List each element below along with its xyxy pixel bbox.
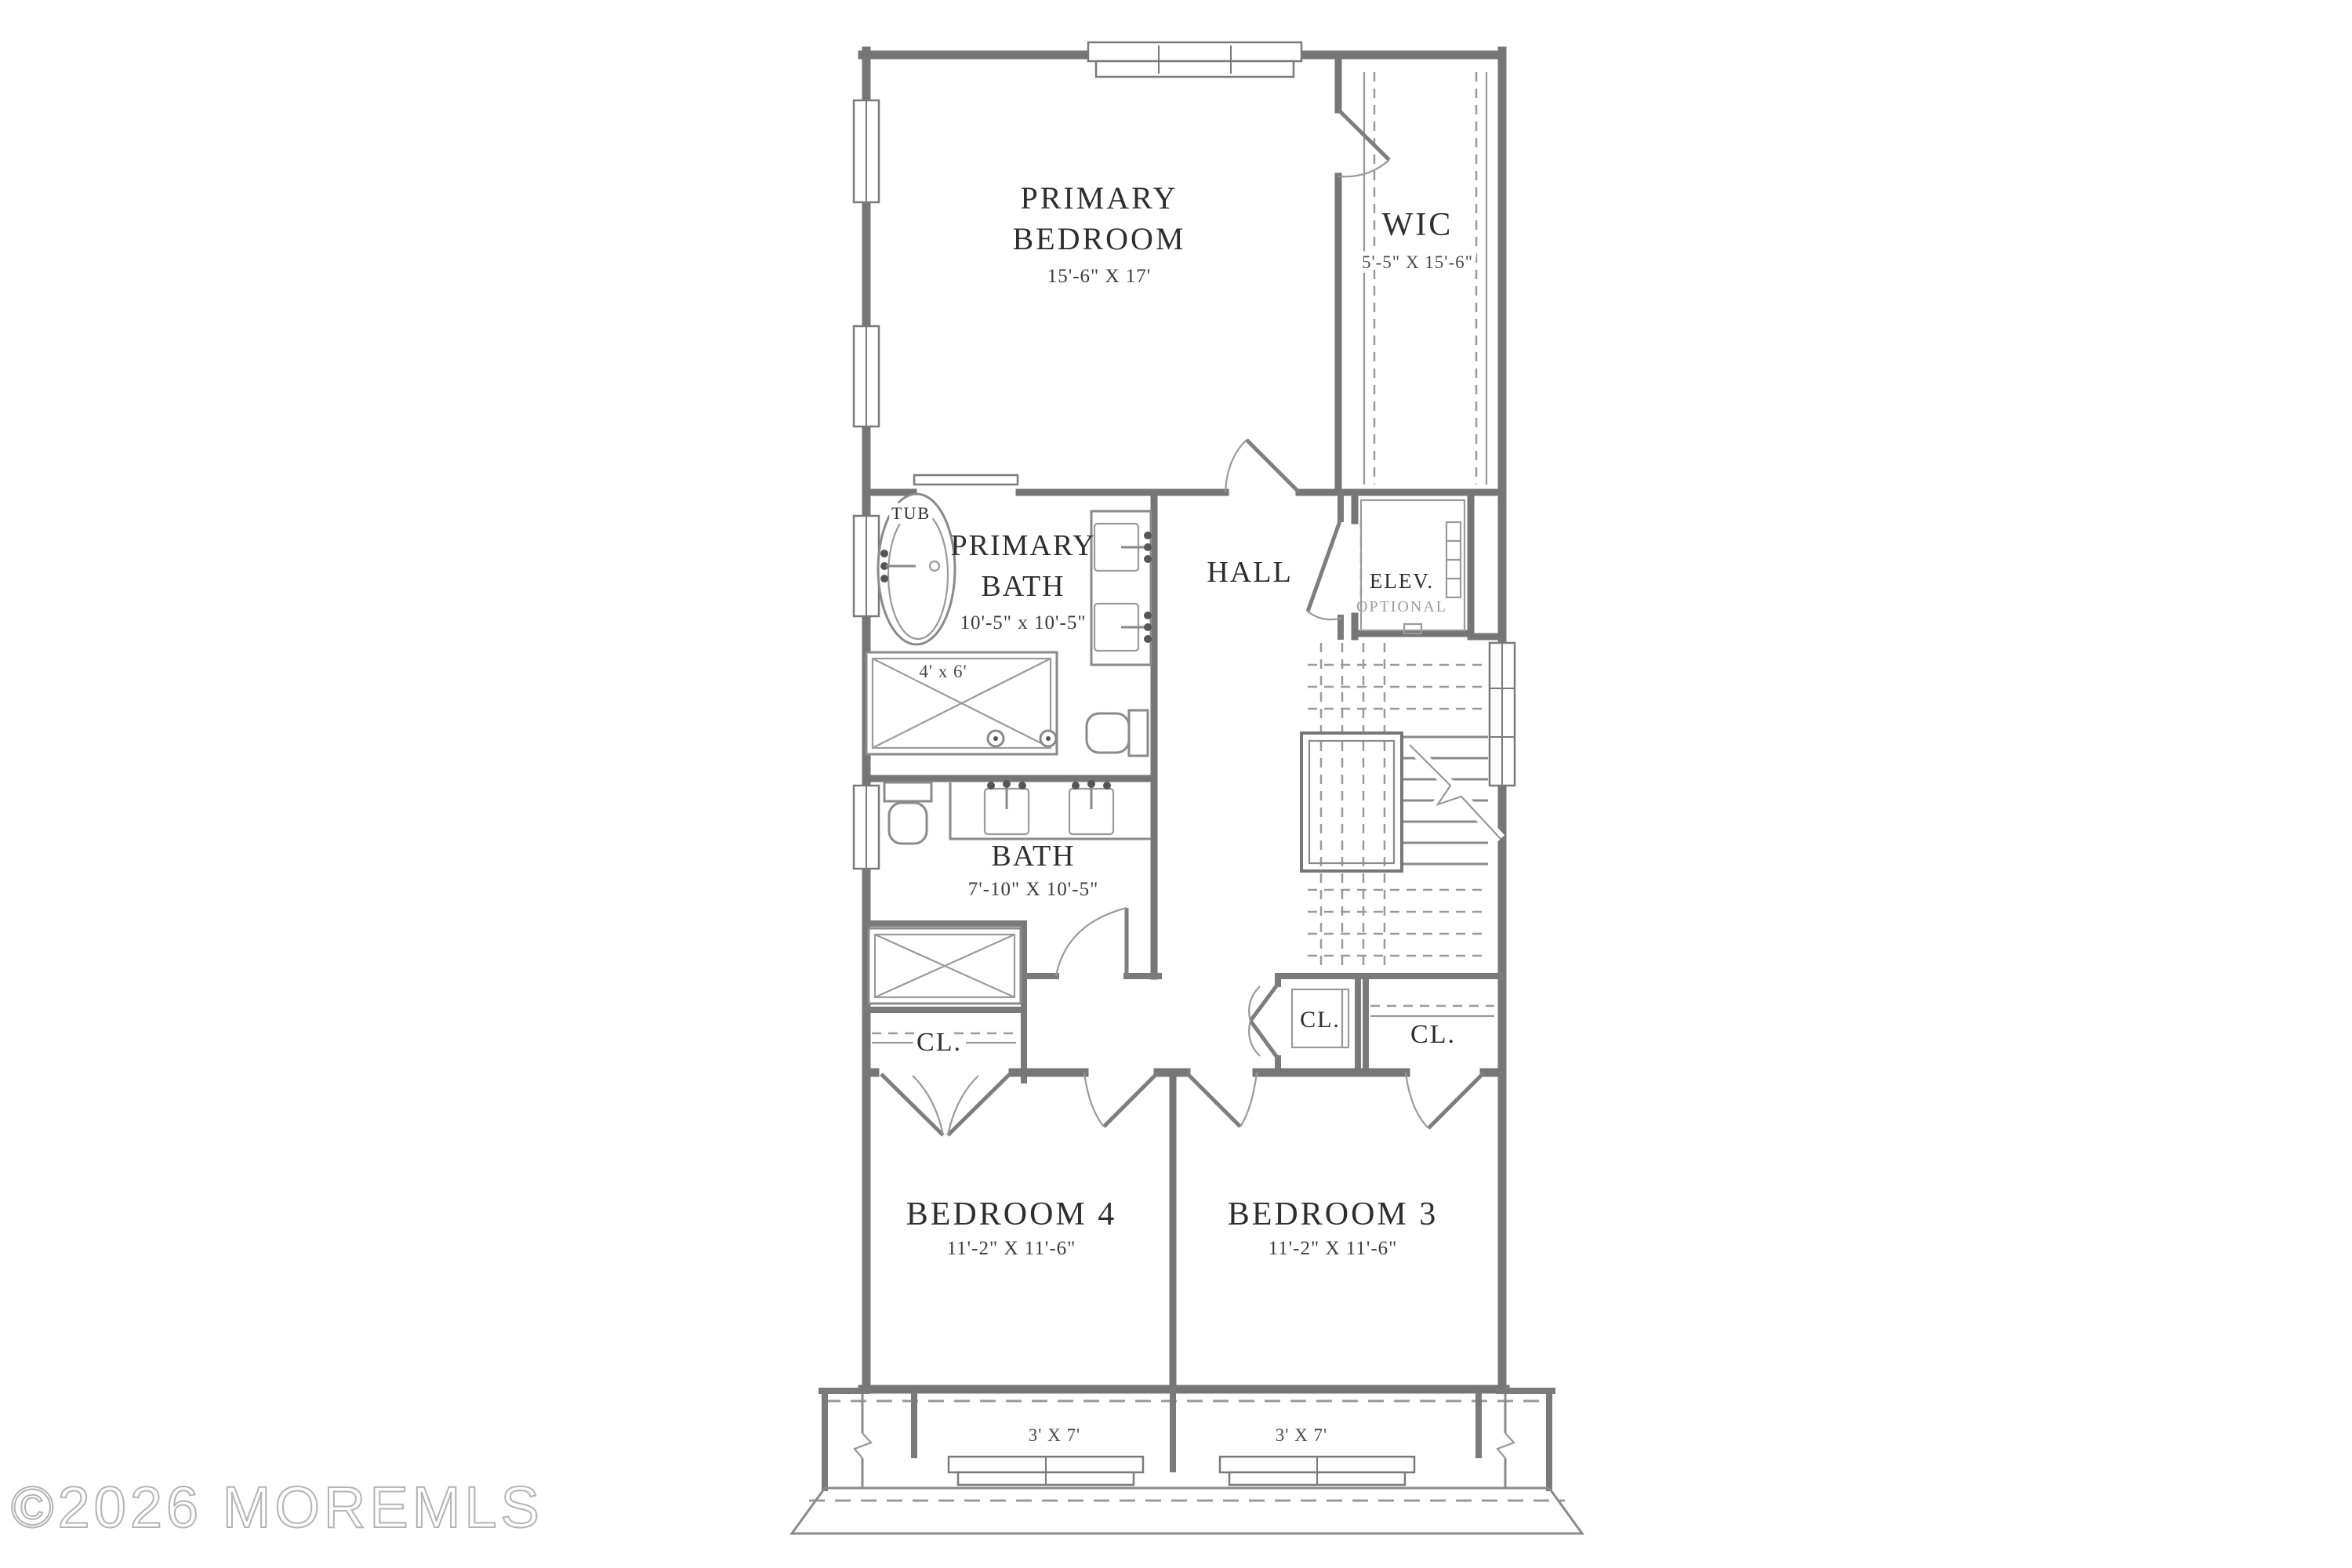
- wic-label: WIC: [1382, 207, 1454, 243]
- elevator-label: ELEV.: [1370, 569, 1434, 593]
- bedroom3-dim: 11'-2" X 11'-6": [1269, 1238, 1398, 1259]
- room-labels: PRIMARY BEDROOM 15'-6" X 17' WIC 5'-5" X…: [891, 180, 1473, 1445]
- double-vanity: [1091, 511, 1152, 665]
- stair-railing: [1301, 733, 1402, 871]
- double-vanity-2: [950, 780, 1151, 839]
- staircase: [1301, 733, 1501, 871]
- bedroom3-label: BEDROOM 3: [1228, 1196, 1439, 1232]
- elevator-door: [1308, 519, 1342, 619]
- window-top: [1088, 42, 1301, 77]
- primary-bedroom-label-line2: BEDROOM: [1012, 221, 1185, 256]
- primary-bedroom-dim: 15'-6" X 17': [1047, 266, 1152, 287]
- bedroom4-door: [1084, 1073, 1158, 1127]
- shower-dim: 4' x 6': [919, 662, 967, 681]
- closet-hall-label: CL.: [1300, 1007, 1341, 1033]
- toilet: [1087, 710, 1148, 756]
- dormer-right-dim: 3' X 7': [1276, 1425, 1327, 1445]
- primary-bedroom-label-line1: PRIMARY: [1020, 180, 1178, 216]
- closet3-door: [1406, 1073, 1484, 1128]
- bath-dim: 7'-10" X 10'-5": [968, 879, 1099, 900]
- closet-bedroom4-label: CL.: [916, 1028, 962, 1057]
- windows-right-wall: [1490, 643, 1515, 786]
- elevator-note: OPTIONAL: [1356, 598, 1447, 615]
- toilet-2: [884, 782, 931, 844]
- linen-cabinet: [869, 928, 1021, 1004]
- bath-label: BATH: [991, 840, 1075, 873]
- primary-bedroom-door: [1225, 440, 1299, 492]
- dormer-left-dim: 3' X 7': [1029, 1425, 1080, 1445]
- mls-watermark: ©2026 MOREMLS: [11, 1475, 543, 1540]
- floor-plan: PRIMARY BEDROOM 15'-6" X 17' WIC 5'-5" X…: [0, 0, 2352, 1568]
- closet4-double-doors: [881, 1074, 1010, 1135]
- window-dormer-left: [949, 1457, 1143, 1485]
- window-dormer-right: [1220, 1457, 1414, 1485]
- dormer-walls: [792, 1389, 1582, 1534]
- bath-door: [1056, 908, 1127, 976]
- bedroom4-label: BEDROOM 4: [906, 1196, 1117, 1232]
- bedroom4-dim: 11'-2" X 11'-6": [947, 1238, 1076, 1259]
- pocket-door: [914, 475, 1018, 485]
- hall-closet-doors: [1249, 984, 1278, 1058]
- primary-bath-label-line2: BATH: [981, 570, 1065, 603]
- primary-bath-label-line1: PRIMARY: [950, 529, 1095, 562]
- closet-bedroom3-label: CL.: [1410, 1020, 1456, 1049]
- tub-label: TUB: [891, 503, 931, 523]
- bedroom3-door: [1186, 1073, 1257, 1127]
- primary-bath-dim: 10'-5" x 10'-5": [960, 612, 1086, 633]
- hall-label: HALL: [1207, 556, 1292, 589]
- wic-dim: 5'-5" X 15'-6": [1362, 252, 1473, 272]
